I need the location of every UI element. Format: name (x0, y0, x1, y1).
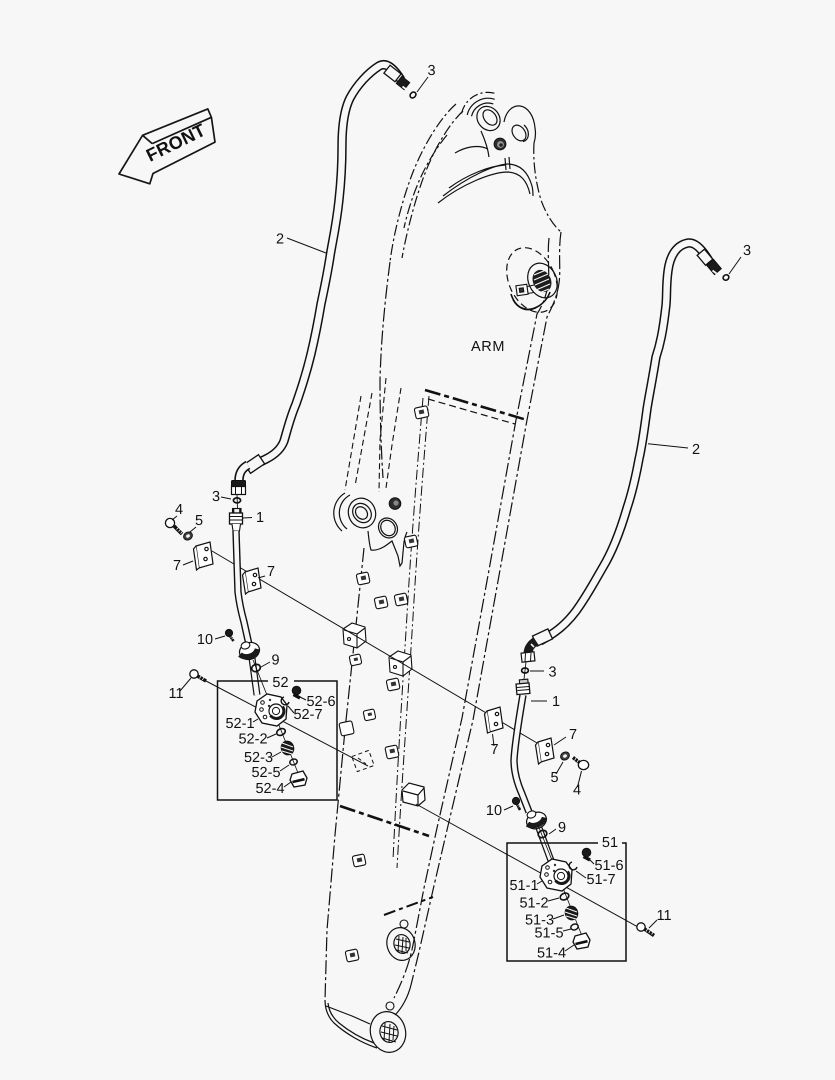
svg-text:ARM: ARM (471, 339, 505, 355)
svg-text:52-3: 52-3 (244, 750, 273, 766)
svg-text:52-5: 52-5 (251, 765, 280, 781)
svg-text:7: 7 (267, 564, 275, 580)
svg-text:2: 2 (692, 442, 700, 458)
svg-text:7: 7 (490, 742, 498, 758)
svg-text:1: 1 (256, 510, 264, 526)
svg-text:10: 10 (486, 803, 502, 819)
svg-text:52-1: 52-1 (225, 716, 254, 732)
svg-text:7: 7 (173, 558, 181, 574)
svg-text:51: 51 (602, 835, 618, 851)
svg-text:51-2: 51-2 (519, 896, 548, 912)
svg-text:3: 3 (743, 243, 751, 259)
svg-text:1: 1 (552, 694, 560, 710)
svg-text:11: 11 (656, 908, 671, 924)
svg-text:3: 3 (548, 665, 556, 681)
svg-text:52-2: 52-2 (238, 732, 267, 748)
svg-text:9: 9 (558, 820, 566, 836)
svg-text:51-1: 51-1 (509, 878, 538, 894)
svg-text:10: 10 (197, 632, 213, 648)
svg-text:9: 9 (271, 653, 279, 669)
svg-text:51-7: 51-7 (586, 872, 615, 888)
svg-text:5: 5 (195, 513, 203, 529)
svg-text:52: 52 (272, 675, 288, 691)
svg-text:4: 4 (573, 783, 581, 799)
svg-text:7: 7 (569, 727, 577, 743)
svg-text:4: 4 (175, 502, 183, 518)
svg-text:51-5: 51-5 (534, 926, 563, 942)
svg-text:11: 11 (168, 686, 183, 702)
svg-text:52-7: 52-7 (293, 707, 322, 723)
svg-text:3: 3 (427, 63, 435, 79)
svg-text:52-4: 52-4 (255, 781, 284, 797)
svg-text:3: 3 (212, 489, 220, 505)
svg-text:2: 2 (276, 232, 284, 248)
svg-text:51-4: 51-4 (537, 946, 566, 962)
